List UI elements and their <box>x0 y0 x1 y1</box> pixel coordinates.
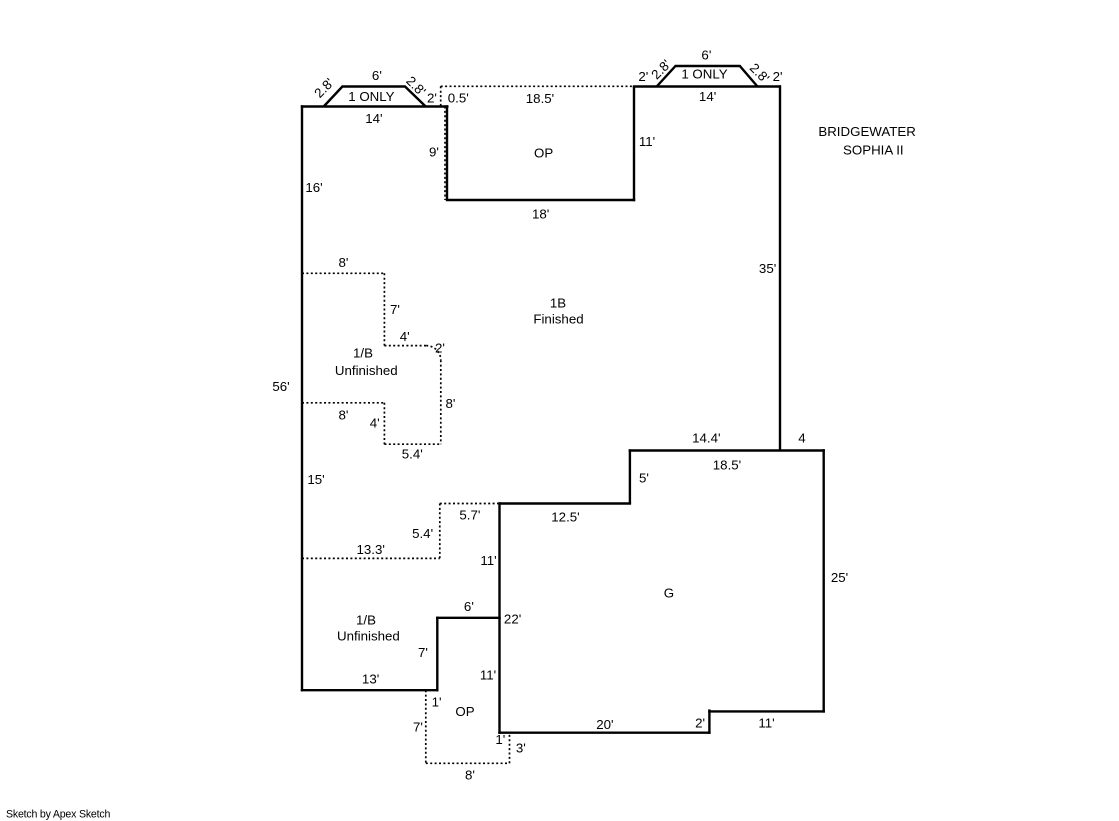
svg-text:2': 2' <box>435 341 445 356</box>
svg-text:1': 1' <box>432 694 442 709</box>
svg-text:22': 22' <box>504 612 521 627</box>
svg-text:OP: OP <box>534 145 553 160</box>
svg-text:11': 11' <box>639 134 655 149</box>
svg-text:5.4': 5.4' <box>402 447 423 462</box>
svg-text:14': 14' <box>365 111 382 126</box>
svg-text:8': 8' <box>465 767 475 782</box>
svg-text:6': 6' <box>464 599 474 614</box>
svg-text:11': 11' <box>480 553 496 568</box>
svg-text:2': 2' <box>773 69 783 84</box>
svg-text:4: 4 <box>798 431 805 446</box>
svg-text:1/B: 1/B <box>356 613 376 628</box>
svg-text:5.7': 5.7' <box>459 508 480 523</box>
svg-text:1/B: 1/B <box>353 346 373 361</box>
svg-text:1': 1' <box>495 732 505 747</box>
svg-text:6': 6' <box>701 48 711 63</box>
svg-text:1 ONLY: 1 ONLY <box>348 89 394 104</box>
svg-text:SOPHIA II: SOPHIA II <box>843 143 904 158</box>
svg-text:Sketch by Apex Sketch: Sketch by Apex Sketch <box>6 809 110 821</box>
svg-text:12.5': 12.5' <box>551 510 579 525</box>
svg-text:G: G <box>664 586 674 601</box>
svg-text:2.8': 2.8' <box>747 60 772 85</box>
svg-text:18.5': 18.5' <box>526 91 554 106</box>
svg-text:1B: 1B <box>550 296 566 311</box>
svg-text:5.4': 5.4' <box>412 526 433 541</box>
svg-text:9': 9' <box>429 145 439 160</box>
svg-text:11': 11' <box>758 716 774 731</box>
svg-text:Unfinished: Unfinished <box>335 363 398 378</box>
svg-text:2': 2' <box>695 716 705 731</box>
svg-text:18.5': 18.5' <box>713 457 741 472</box>
svg-text:18': 18' <box>532 207 549 222</box>
svg-text:20': 20' <box>596 717 613 732</box>
svg-text:6': 6' <box>372 68 382 83</box>
svg-text:2': 2' <box>638 69 648 84</box>
svg-text:25': 25' <box>831 570 848 585</box>
svg-text:OP: OP <box>455 704 474 719</box>
svg-text:8': 8' <box>339 255 349 270</box>
svg-text:14.4': 14.4' <box>692 431 720 446</box>
svg-text:14': 14' <box>699 89 716 104</box>
svg-text:7': 7' <box>418 645 428 660</box>
svg-text:2': 2' <box>427 91 437 106</box>
svg-text:35': 35' <box>759 261 776 276</box>
svg-text:15': 15' <box>307 472 324 487</box>
svg-text:56': 56' <box>272 379 289 394</box>
svg-text:4': 4' <box>370 416 380 431</box>
svg-text:BRIDGEWATER: BRIDGEWATER <box>818 124 916 139</box>
svg-text:13.3': 13.3' <box>356 542 384 557</box>
svg-text:Finished: Finished <box>533 311 583 326</box>
svg-text:11': 11' <box>480 668 496 683</box>
svg-text:2.8': 2.8' <box>403 73 428 98</box>
svg-text:7': 7' <box>413 719 423 734</box>
svg-text:7': 7' <box>390 302 400 317</box>
svg-text:Unfinished: Unfinished <box>337 629 400 644</box>
svg-text:13': 13' <box>362 672 379 687</box>
svg-text:1 ONLY: 1 ONLY <box>681 66 727 81</box>
svg-text:0.5': 0.5' <box>448 91 469 106</box>
svg-text:5': 5' <box>639 471 649 486</box>
svg-text:8': 8' <box>446 396 456 411</box>
svg-text:16': 16' <box>305 180 322 195</box>
svg-text:2.8': 2.8' <box>648 57 673 82</box>
svg-text:8': 8' <box>339 407 349 422</box>
svg-text:3': 3' <box>516 741 526 756</box>
svg-text:4': 4' <box>400 329 410 344</box>
